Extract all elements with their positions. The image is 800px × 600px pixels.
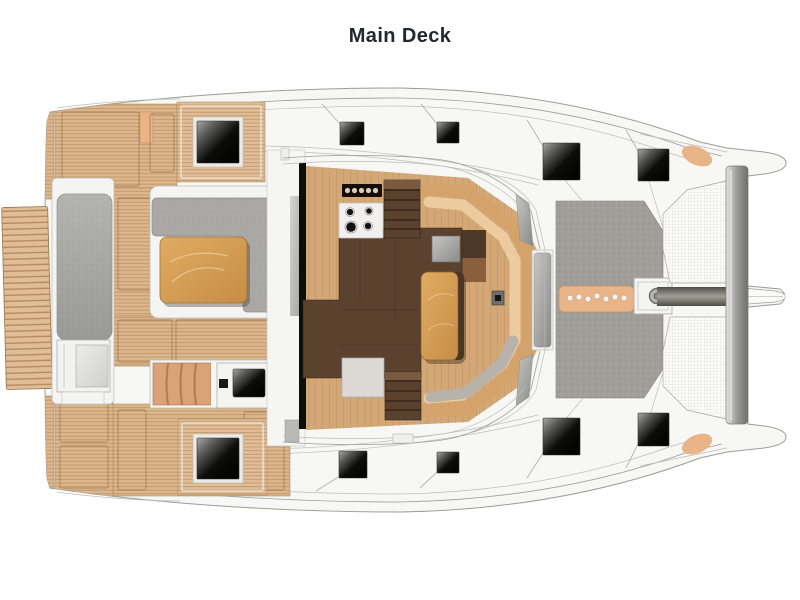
windshield-pane [534,253,551,347]
deck-hatch [339,451,367,478]
swim-platform [2,206,53,389]
stove-control-panel [342,184,382,197]
cockpit-trim-pad [140,112,153,143]
floorplan-canvas [0,0,800,600]
forward-crossbeam [726,166,748,424]
anchor-locker-step [559,286,634,312]
deck-hatch [543,143,580,180]
deck-hatch [437,122,459,143]
salon [283,155,553,444]
deck-hatch [638,149,669,181]
bowsprit [657,287,727,306]
stove [339,203,383,238]
salon-stairs-port [385,372,421,420]
deck-locker-aft [178,419,267,495]
wet-bar-console [217,363,272,408]
console-hatch [233,369,265,397]
sliding-door [299,163,306,429]
deck-hatch [437,452,459,473]
dinette-cabinet [462,258,486,282]
deck-hatch [340,122,364,145]
floorplan: Main Deck [0,0,800,600]
deck-hatch [638,413,669,446]
salon-table [421,272,466,364]
fridge-lid [342,358,384,397]
deck-hatch [197,121,239,163]
cockpit-table [160,237,250,307]
salon-bulkhead [267,148,306,446]
deck-hatch [543,418,580,455]
salon-stairs-starboard [384,180,420,238]
deck-locker-forward [177,102,265,182]
deck-hatch [197,438,239,479]
console-switch [219,379,228,388]
aft-console [57,340,110,404]
galley-sink [432,236,460,262]
